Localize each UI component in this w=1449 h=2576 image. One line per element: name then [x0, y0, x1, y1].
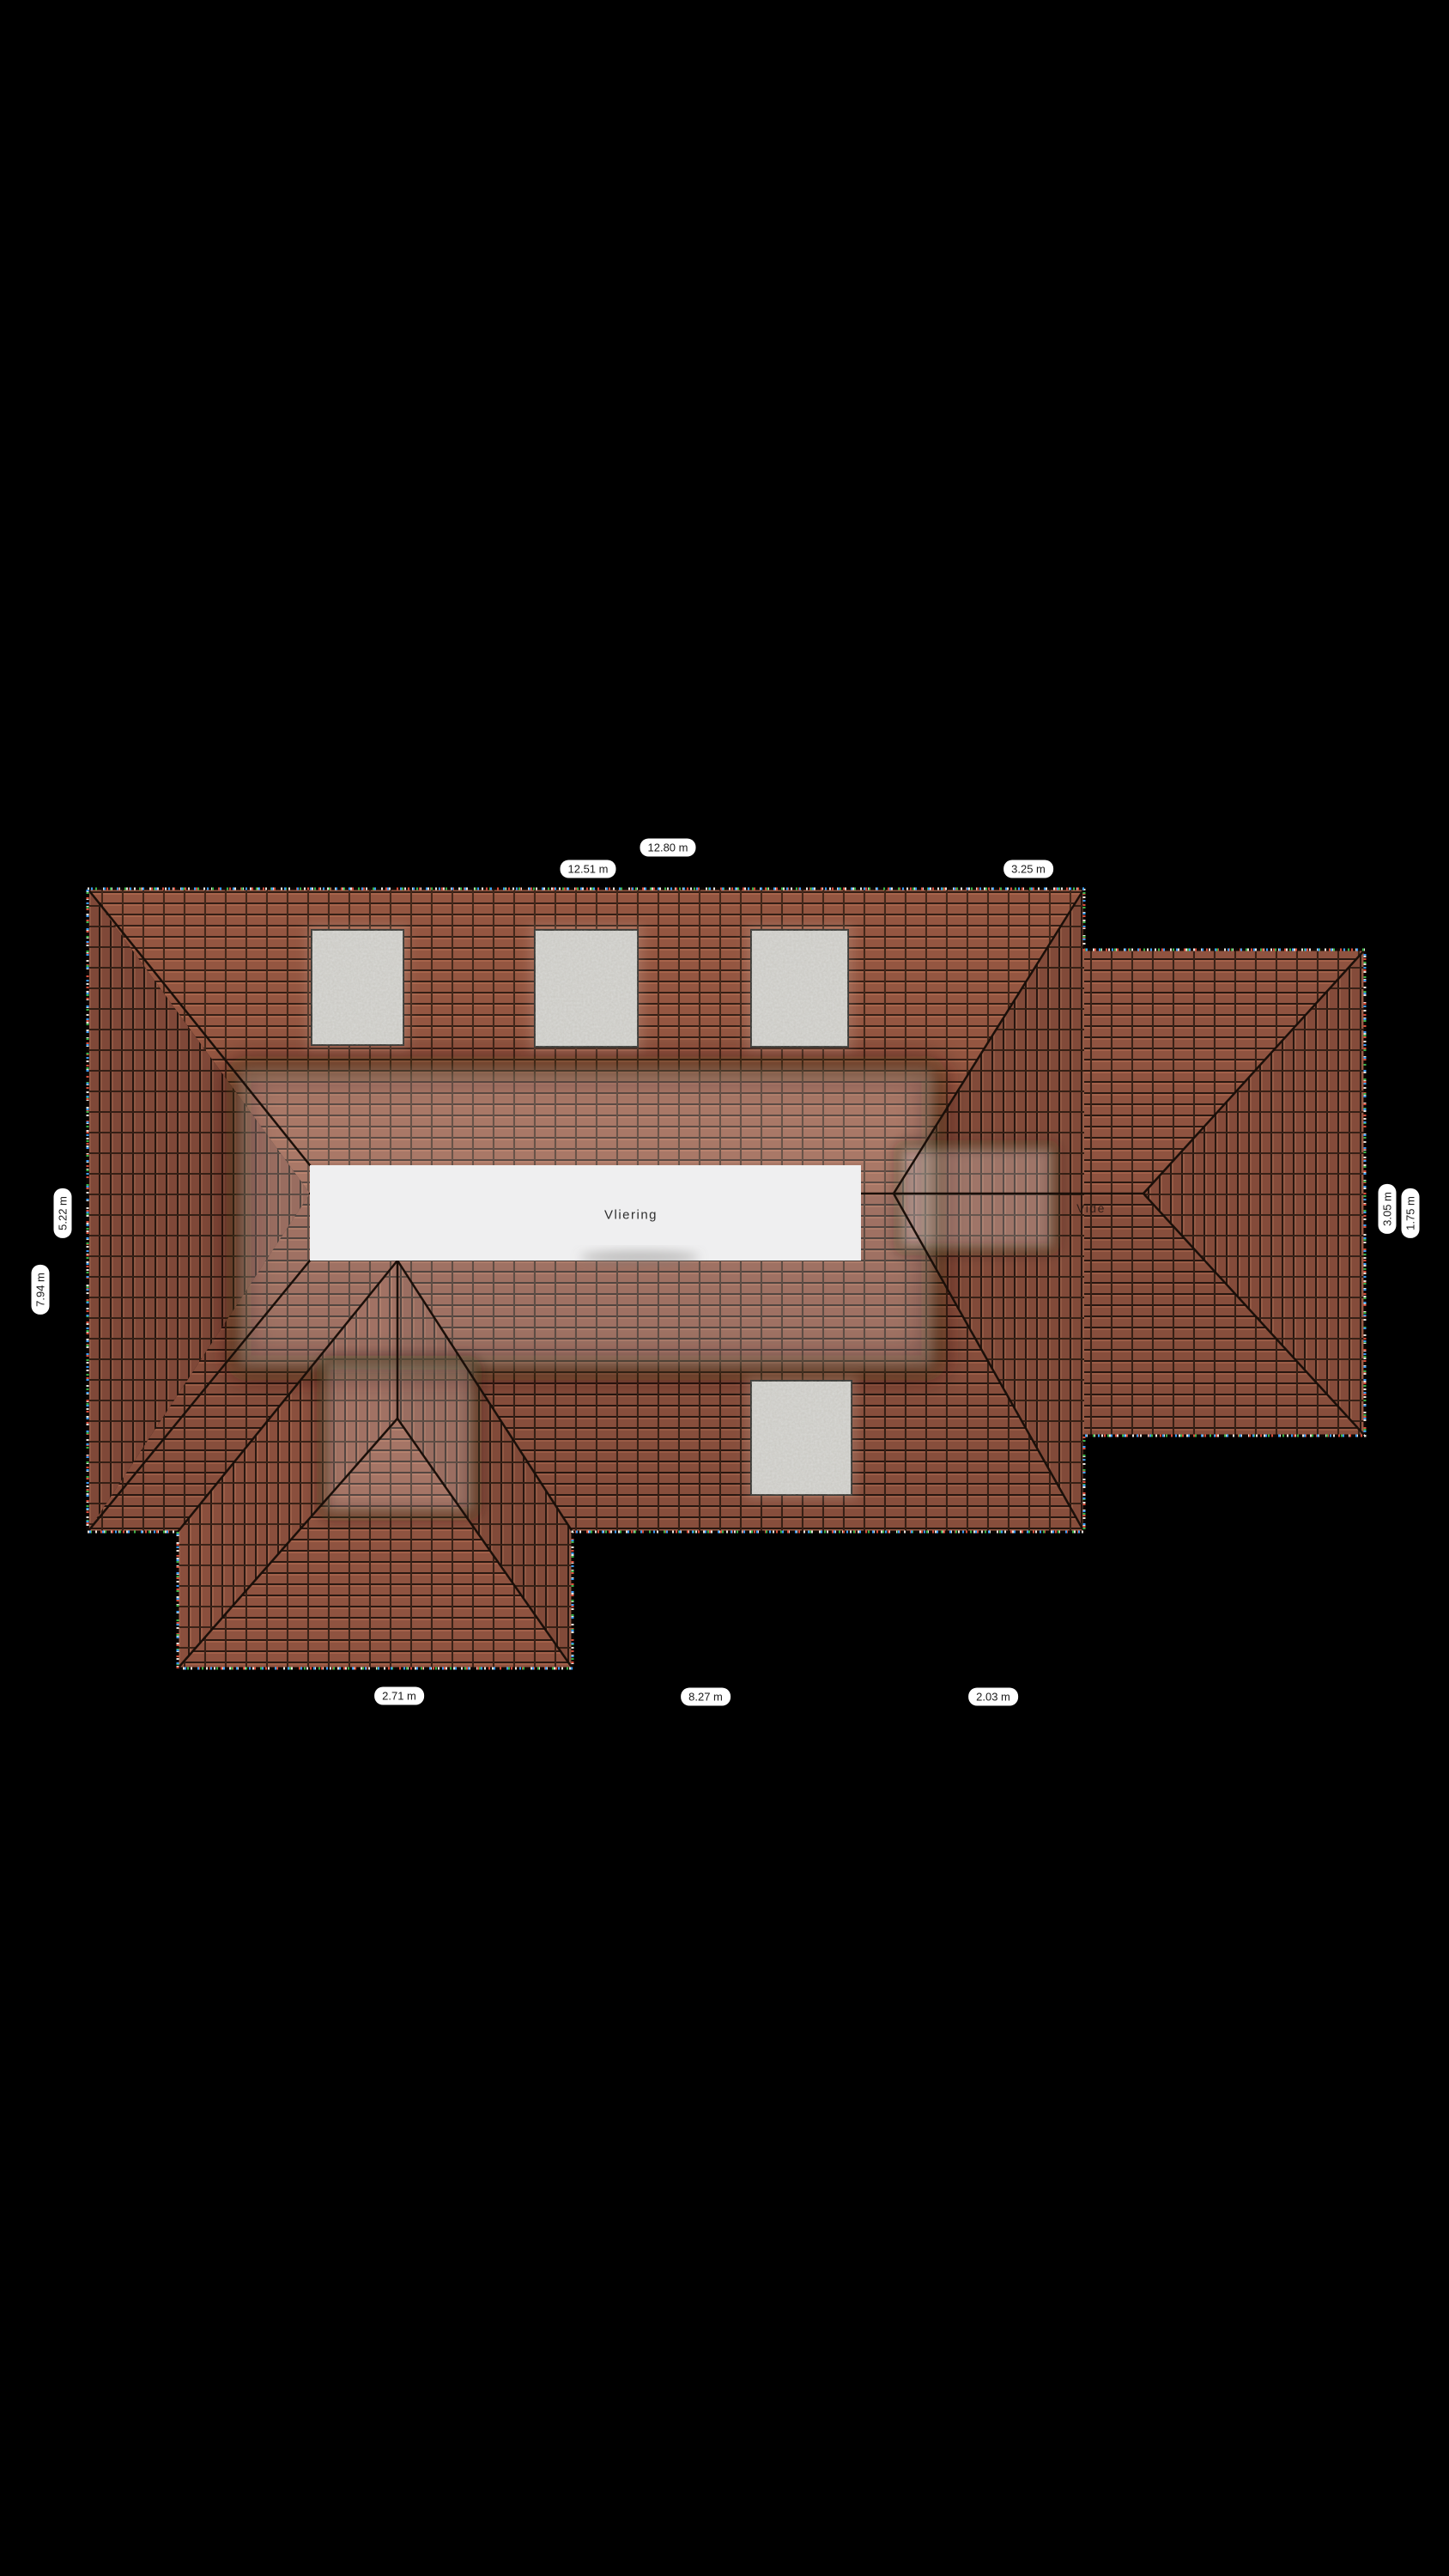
room-label-vide: Vide — [1076, 1201, 1106, 1215]
dim-label-right-3-05: 3.05 m — [1379, 1184, 1397, 1234]
dim-label-left-7-94: 7.94 m — [32, 1265, 50, 1315]
dim-label-top-12-80: 12.80 m — [640, 839, 696, 857]
skylight — [306, 925, 409, 1050]
dim-label-bottom-8-27: 8.27 m — [681, 1688, 731, 1706]
dim-label-top-12-51: 12.51 m — [561, 860, 616, 878]
skylight — [530, 925, 643, 1052]
dim-label-top-3-25: 3.25 m — [1003, 860, 1053, 878]
dim-label-right-1-75: 1.75 m — [1402, 1188, 1420, 1238]
vliering-floor — [310, 1165, 861, 1263]
roof-plan-canvas: Vliering Vide 12.51 m 12.80 m 3.25 m 2.7… — [0, 0, 1449, 2576]
dim-label-bottom-2-03: 2.03 m — [968, 1688, 1018, 1706]
room-label-vliering: Vliering — [604, 1208, 658, 1223]
dim-label-left-5-22: 5.22 m — [54, 1188, 72, 1238]
roof-plan — [0, 0, 1449, 2576]
skylight — [746, 1376, 857, 1500]
skylight — [746, 925, 853, 1052]
vide-room-ghost — [900, 1146, 1054, 1249]
lower-room-ghost — [324, 1363, 475, 1514]
dim-label-bottom-2-71: 2.71 m — [374, 1687, 424, 1705]
